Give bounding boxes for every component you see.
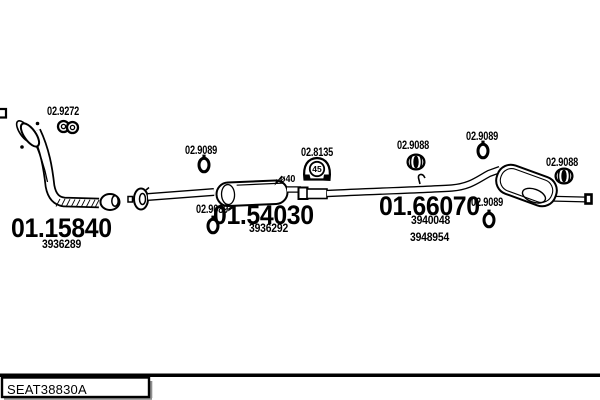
diagram-canvas: 45 02.9272 02.9089 02.8135 02.9088 02.90…	[0, 0, 600, 400]
mount-size-mark: 45	[312, 164, 322, 174]
fitting-label-ring-mid-top: 02.9089	[185, 146, 217, 158]
bolt-hole	[20, 145, 24, 149]
front-pipe	[33, 131, 99, 208]
fitting-label-clamp-tail: 02.9088	[546, 158, 578, 170]
clamp-icon-9088	[408, 155, 425, 170]
fitting-label-mount: 02.8135	[301, 148, 333, 160]
sleeve-connector	[299, 188, 328, 200]
fitting-label-ring-rear-top: 02.9089	[466, 132, 498, 144]
footer-bar	[0, 374, 600, 400]
mount-icon-8135: 45	[304, 158, 331, 181]
clamp-icon-9088	[556, 169, 573, 184]
fitting-label-clamp-front: 02.9272	[47, 107, 79, 119]
diameter-annotation: ø40	[280, 174, 295, 185]
pipe-end-cup	[101, 194, 120, 210]
part-ref-rear-muffler-2: 3948954	[410, 233, 449, 245]
part-number-front-pipe: 01.15840	[11, 215, 112, 242]
rear-pipe	[327, 170, 500, 194]
part-ref-front-pipe: 3936289	[42, 240, 81, 252]
tailpipe-end-cap	[586, 195, 592, 204]
joint-flange-ring	[134, 188, 149, 210]
hanger-pin	[418, 174, 425, 184]
part-ref-centre-muffler: 3936292	[249, 224, 288, 236]
clamp-icon-9272	[58, 121, 78, 133]
part-ref-rear-muffler-1: 3940048	[411, 216, 450, 228]
mid-pipe	[148, 192, 214, 197]
ring-icon	[484, 210, 494, 227]
gasket-square	[128, 197, 133, 203]
edge-mark	[0, 109, 6, 118]
bolt-hole	[36, 122, 40, 126]
fitting-label-clamp-rear-left: 02.9088	[397, 141, 429, 153]
diagram-code: SEAT38830A	[7, 383, 87, 396]
